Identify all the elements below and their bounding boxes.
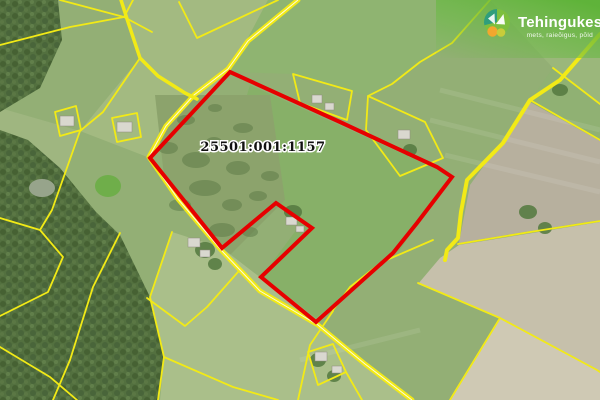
- pond: [29, 179, 55, 197]
- brand-watermark: Tehingukeskus mets, raieõigus, põld: [436, 0, 600, 58]
- parcel-cadastral-number: 25501:001:1157: [200, 140, 325, 155]
- brand-tagline: mets, raieõigus, põld: [527, 32, 593, 39]
- map-view[interactable]: 25501:001:1157 Tehingukeskus mets, raieõ…: [0, 0, 600, 400]
- aerial-map-canvas[interactable]: 25501:001:1157 Tehingukeskus mets, raieõ…: [0, 0, 600, 400]
- brand-name: Tehingukeskus: [518, 14, 600, 31]
